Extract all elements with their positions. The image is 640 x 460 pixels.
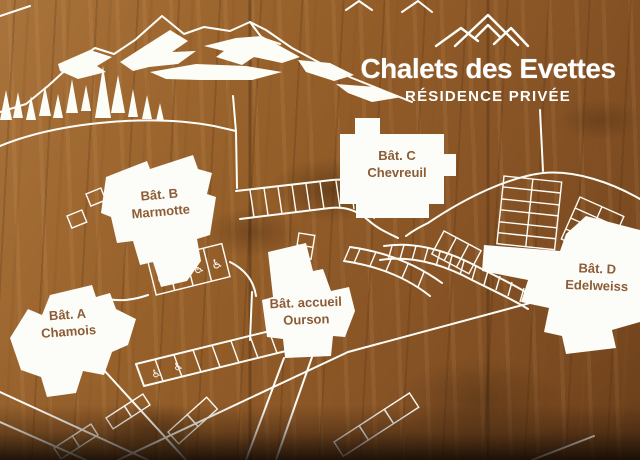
building-d-label: Bât. D Edelweiss [536,258,640,296]
pine-tree-icon [26,96,36,120]
building-reception-code: Bât. accueil [269,294,342,312]
wheelchair-icon: ♿ [172,359,185,374]
building-c-name: Chevreuil [337,164,457,181]
building-a-code: Bât. A [48,306,86,324]
pine-tree-icon [39,86,51,116]
pine-tree-icon [66,79,78,113]
pine-tree-icon [81,85,91,111]
parking-grid [497,176,562,250]
parking-cells-bottom [54,393,419,459]
pine-tree-icon [0,90,12,120]
sign-subtitle: RÉSIDENCE PRIVÉE [380,88,596,105]
wheelchair-icon: ♿ [150,366,163,381]
pine-tree-icon [128,89,138,117]
building-c-code: Bât. C [378,148,416,163]
building-d-code: Bât. D [578,260,616,276]
pine-tree-icon [111,75,125,113]
parking-fan [344,247,442,296]
wheelchair-icon: ♿ [210,256,225,273]
pine-tree-icon [53,94,63,118]
building-reception-label: Bât. accueil Ourson [245,292,366,330]
sign-title: Chalets des Evettes [336,53,640,85]
mountain-peaks-icon [428,4,532,50]
snow-patch [120,30,196,71]
wooden-sign-map: ♿ ♿ ♿ ♿ ♿ ♿ [0,0,640,460]
building-c-label: Bât. C Chevreuil [337,147,457,181]
snow-patch [150,64,282,80]
pine-tree-icon [142,95,152,119]
pine-tree-icon [156,103,164,121]
parking-band-lower: ♿ ♿ [136,328,290,386]
wheelchair-icon: ♿ [191,261,206,278]
snow-patch [204,36,300,65]
